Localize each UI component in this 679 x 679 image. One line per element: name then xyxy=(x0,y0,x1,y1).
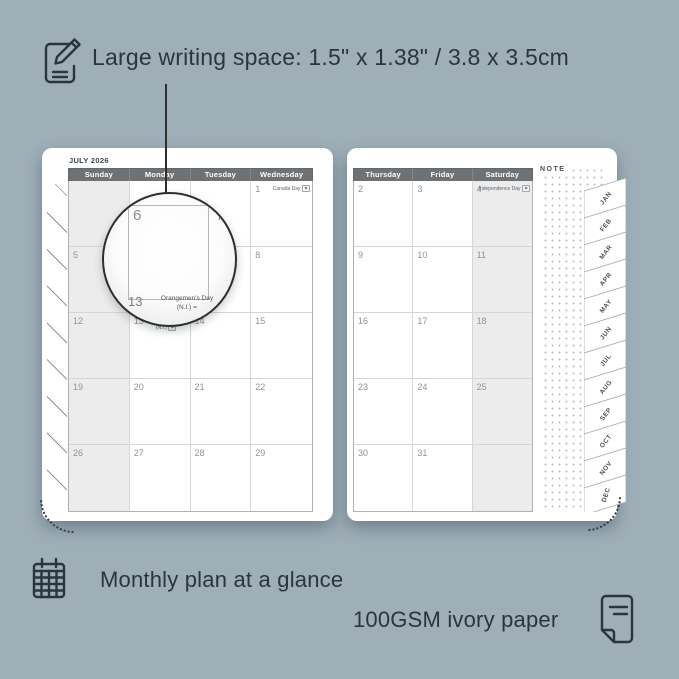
calendar-cell: 9 xyxy=(354,247,413,313)
bottom-left-caption: Monthly plan at a glance xyxy=(100,567,343,593)
date-number: 31 xyxy=(417,448,427,458)
calendar-cell: 1Canada Day ⚑ xyxy=(251,181,312,247)
calendar-cell: 24 xyxy=(413,379,472,445)
calendar-cell: 10 xyxy=(413,247,472,313)
date-number: 1 xyxy=(255,184,260,194)
flag-icon xyxy=(193,306,197,308)
calendar-cell: 27 xyxy=(130,445,191,511)
magnifier-circle: 6 7 13 Orangemen's Day (N.I.) xyxy=(102,192,237,327)
date-number: 28 xyxy=(195,448,205,458)
date-number: 8 xyxy=(255,250,260,260)
calendar-cell: 19 xyxy=(69,379,130,445)
date-number: 3 xyxy=(417,184,422,194)
date-number: 18 xyxy=(477,316,487,326)
date-number: 20 xyxy=(134,382,144,392)
date-number: 27 xyxy=(134,448,144,458)
day-header: Monday xyxy=(130,169,191,181)
date-number: 26 xyxy=(73,448,83,458)
date-number: 22 xyxy=(255,382,265,392)
date-number: 17 xyxy=(417,316,427,326)
calendar-grid-right: ThursdayFridaySaturday234Independence Da… xyxy=(353,168,533,512)
magnified-day: 6 xyxy=(133,207,141,224)
calendar-cell: 16 xyxy=(354,313,413,379)
date-number: 10 xyxy=(417,250,427,260)
holiday-label: Independence Day ⚑ xyxy=(479,185,530,192)
flag-icon: ⚑ xyxy=(302,185,310,192)
day-header: Wednesday xyxy=(251,169,312,181)
calendar-cell: 22 xyxy=(251,379,312,445)
calendar-cell: 20 xyxy=(130,379,191,445)
calendar-cell: 23 xyxy=(354,379,413,445)
day-header: Tuesday xyxy=(191,169,252,181)
planner-right-page: ThursdayFridaySaturday234Independence Da… xyxy=(347,148,617,521)
date-number: 21 xyxy=(195,382,205,392)
month-tabs: JANFEBMARAPRMAYJUNJULAUGSEPOCTNOVDEC xyxy=(584,170,628,512)
callout-line xyxy=(165,84,167,194)
calendar-cell: 26 xyxy=(69,445,130,511)
date-number: 15 xyxy=(255,316,265,326)
date-number: 23 xyxy=(358,382,368,392)
month-title: JULY 2026 xyxy=(69,156,109,165)
flag-icon: ⚑ xyxy=(522,185,530,192)
magnified-day: 7 xyxy=(216,207,224,224)
bottom-right-caption: 100GSM ivory paper xyxy=(353,607,558,633)
date-number: 12 xyxy=(73,316,83,326)
pencil-note-icon xyxy=(42,36,84,86)
binding-hatch-edge xyxy=(47,184,67,506)
calendar-cell: 28 xyxy=(191,445,252,511)
day-header: Sunday xyxy=(69,169,130,181)
magnified-day: 13 xyxy=(128,294,142,309)
date-number: 16 xyxy=(358,316,368,326)
calendar-cell: 29 xyxy=(251,445,312,511)
calendar-cell: 4Independence Day ⚑ xyxy=(473,181,532,247)
calendar-cell: 18 xyxy=(473,313,532,379)
date-number: 24 xyxy=(417,382,427,392)
date-number: 5 xyxy=(73,250,78,260)
date-number: 29 xyxy=(255,448,265,458)
calendar-cell: 15 xyxy=(251,313,312,379)
calendar-cell: 8 xyxy=(251,247,312,313)
date-number: 25 xyxy=(477,382,487,392)
date-number: 30 xyxy=(358,448,368,458)
calendar-cell: 14 xyxy=(191,313,252,379)
note-label: NOTE xyxy=(540,166,567,173)
calendar-cell: 21 xyxy=(191,379,252,445)
calendar-cell: 12 xyxy=(69,313,130,379)
paper-icon xyxy=(597,594,635,646)
planner-product-image: Large writing space: 1.5" x 1.38" / 3.8 … xyxy=(0,0,679,679)
calendar-cell: 25 xyxy=(473,379,532,445)
magnified-holiday: Orangemen's Day (N.I.) xyxy=(144,295,230,313)
day-header: Friday xyxy=(413,169,472,181)
calendar-cell: 2 xyxy=(354,181,413,247)
date-number: 11 xyxy=(477,250,486,260)
day-header: Thursday xyxy=(354,169,413,181)
calendar-cell: 11 xyxy=(473,247,532,313)
top-caption: Large writing space: 1.5" x 1.38" / 3.8 … xyxy=(92,44,569,71)
calendar-cell: 30 xyxy=(354,445,413,511)
date-number: 19 xyxy=(73,382,83,392)
calendar-cell: 3 xyxy=(413,181,472,247)
date-number: 9 xyxy=(358,250,363,260)
calendar-icon xyxy=(31,556,67,600)
holiday-label: Canada Day ⚑ xyxy=(273,185,310,192)
day-header: Saturday xyxy=(473,169,532,181)
date-number: 2 xyxy=(358,184,363,194)
calendar-cell xyxy=(473,445,532,511)
calendar-cell: 17 xyxy=(413,313,472,379)
calendar-cell: 31 xyxy=(413,445,472,511)
